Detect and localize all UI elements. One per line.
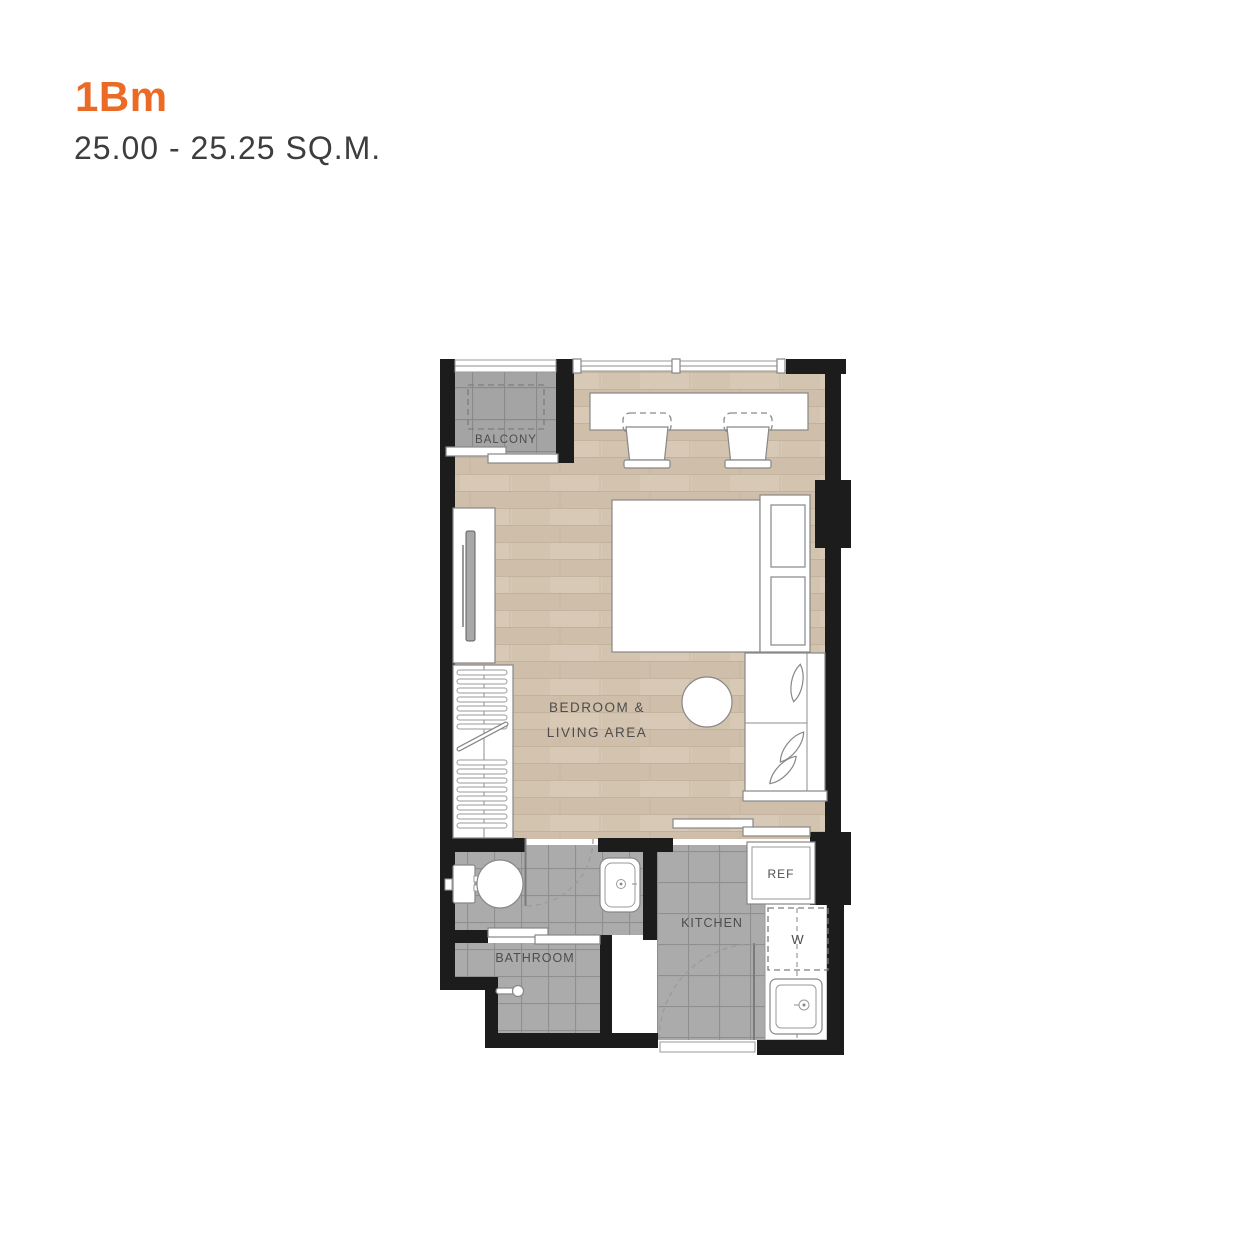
wardrobe — [453, 665, 513, 838]
floorplan-svg: BALCONY BEDROOM & LIVING AREA BATHROOM K… — [440, 355, 852, 1073]
kitchen-label: KITCHEN — [681, 916, 743, 930]
desk — [590, 393, 808, 430]
bedroom-label-line1: BEDROOM & — [549, 700, 645, 715]
tv-icon — [466, 531, 475, 641]
bedroom-label-line2: LIVING AREA — [547, 725, 648, 740]
entrance-threshold — [660, 1042, 755, 1052]
round-table — [682, 677, 732, 727]
toilet-icon — [445, 860, 523, 908]
bathroom-sink-icon — [600, 858, 640, 912]
floorplan-container: BALCONY BEDROOM & LIVING AREA BATHROOM K… — [440, 355, 852, 1073]
balcony-label: BALCONY — [475, 434, 537, 446]
bed — [612, 500, 760, 652]
kitchen-sink-icon — [770, 979, 822, 1034]
sofa — [743, 653, 827, 801]
floorplan-page: { "header": { "unit_type": "1Bm", "area_… — [0, 0, 1241, 1241]
washer-label: W — [791, 932, 804, 947]
unit-type-title: 1Bm — [75, 76, 168, 118]
refrigerator-label: REF — [768, 867, 795, 881]
bathroom-label: BATHROOM — [495, 951, 574, 965]
kitchen-sliding-door — [673, 819, 753, 828]
unit-area-range: 25.00 - 25.25 SQ.M. — [74, 131, 381, 166]
